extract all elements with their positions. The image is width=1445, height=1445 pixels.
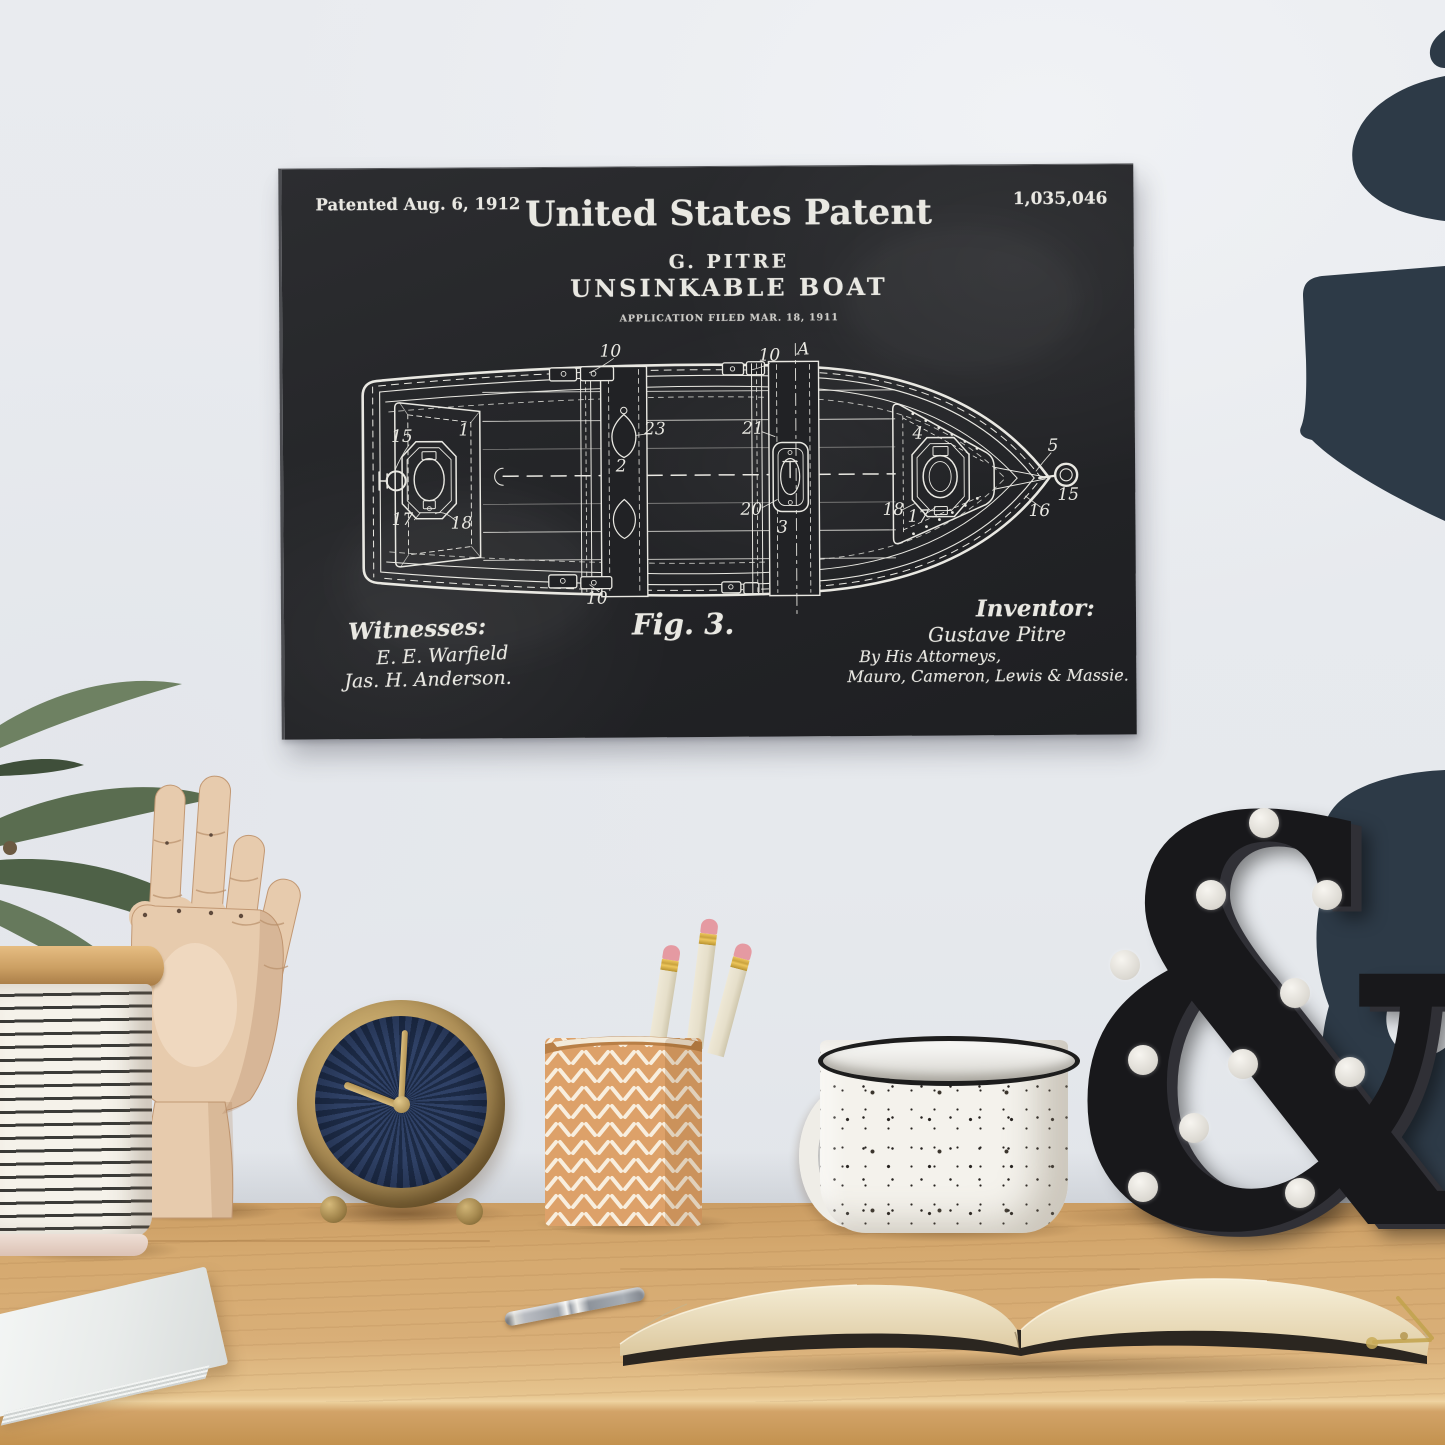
part-label: 16 (1028, 501, 1050, 521)
part-label: 18 (882, 500, 904, 520)
marquee-bulb (1196, 880, 1226, 910)
marquee-bulb (1312, 880, 1342, 910)
part-label: A (795, 339, 809, 359)
part-label: 3 (777, 518, 788, 538)
marquee-bulb (1249, 808, 1279, 838)
bulkhead-band (600, 366, 647, 596)
stern-hatch-octagon (402, 442, 456, 519)
part-label: 23 (643, 419, 666, 439)
part-label: 15 (391, 427, 413, 447)
canister-base (0, 1234, 148, 1256)
desk-front-edge (0, 1402, 1445, 1445)
part-label: 10 (759, 346, 781, 366)
part-label: 2 (615, 456, 627, 476)
patent-art-print: Patented Aug. 6, 1912 1,035,046 United S… (278, 163, 1136, 739)
marquee-bulb (1285, 1178, 1315, 1208)
marquee-bulb (1280, 978, 1310, 1008)
part-label: 10 (586, 589, 608, 609)
clock-foot (456, 1198, 483, 1225)
marquee-bulb (1335, 1057, 1365, 1087)
bow-ring (1055, 464, 1077, 486)
part-label: 18 (451, 513, 473, 533)
part-label: 17 (908, 507, 930, 527)
open-notebook (605, 1252, 1445, 1392)
part-label: 5 (1047, 436, 1058, 456)
part-label: 17 (392, 510, 414, 530)
marquee-bulb (1128, 1045, 1158, 1075)
striped-canister (0, 984, 152, 1238)
marquee-bulb (1110, 950, 1140, 980)
attorneys-names: Mauro, Cameron, Lewis & Massie. (847, 665, 1129, 686)
marquee-bulb (1228, 1049, 1258, 1079)
mug-rim (818, 1036, 1080, 1086)
part-label: 10 (600, 342, 622, 362)
hull-outline (362, 363, 1049, 598)
witnesses-heading: Witnesses: (348, 613, 487, 646)
part-label: 1 (458, 420, 469, 440)
marquee-bulb (1128, 1172, 1158, 1202)
part-label: 15 (1057, 485, 1079, 505)
witness-signature: Jas. H. Anderson. (344, 667, 512, 693)
part-label: 20 (739, 500, 762, 520)
inventor-heading: Inventor: (976, 595, 1095, 623)
inventor-signature: Gustave Pitre (928, 622, 1066, 647)
herringbone-pencil-cup (545, 1030, 702, 1228)
styled-room-photo: Patented Aug. 6, 1912 1,035,046 United S… (0, 0, 1445, 1445)
marquee-bulb (1179, 1113, 1209, 1143)
clock-foot (320, 1196, 347, 1223)
attorneys-by-line: By His Attorneys, (859, 646, 1001, 666)
part-label: 21 (741, 419, 764, 439)
brass-clip (1360, 1290, 1445, 1370)
clock-hub (393, 1096, 410, 1113)
figure-label: Fig. 3. (632, 607, 735, 642)
marquee-ampersand-light: & (1048, 772, 1438, 1222)
canister-wood-lid (0, 946, 164, 986)
part-label: 4 (911, 424, 923, 444)
ampersand-glyph: & (1069, 748, 1389, 1308)
